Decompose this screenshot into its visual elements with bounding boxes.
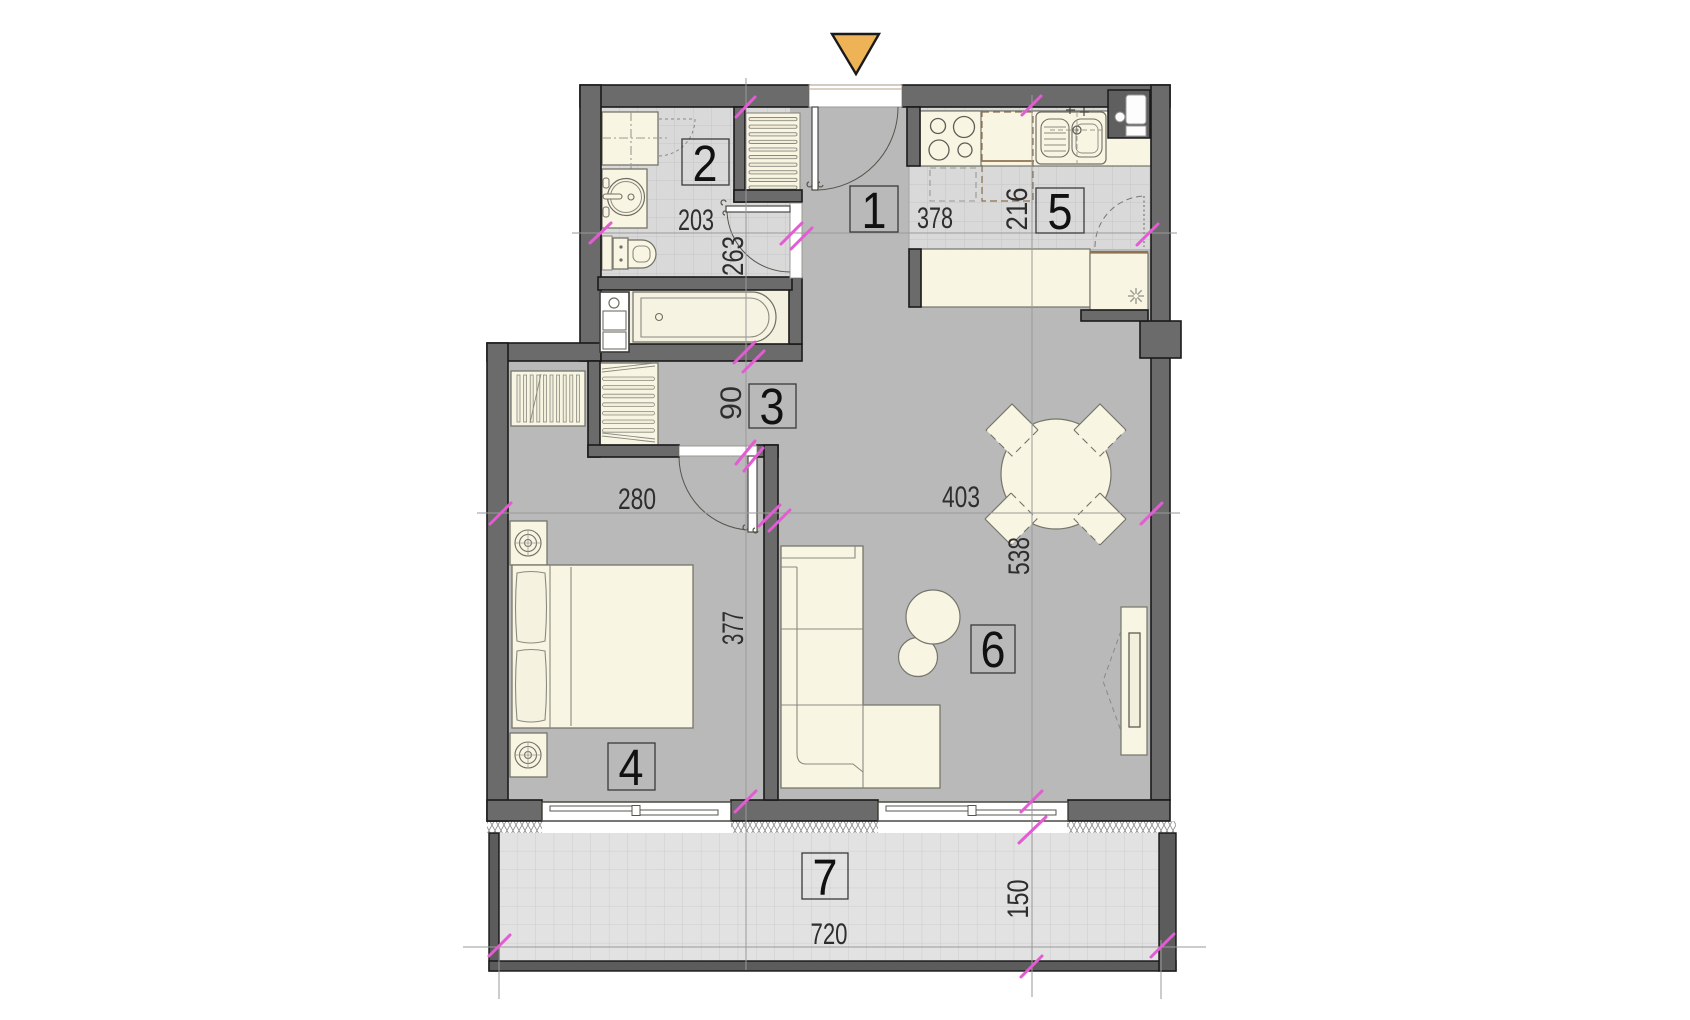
svg-text:150: 150: [1002, 880, 1035, 919]
svg-text:6: 6: [981, 621, 1006, 678]
svg-text:403: 403: [942, 481, 980, 514]
svg-text:1: 1: [862, 182, 887, 239]
svg-text:203: 203: [678, 204, 714, 237]
svg-text:2: 2: [693, 135, 718, 192]
svg-text:4: 4: [619, 739, 644, 796]
svg-text:90: 90: [715, 386, 748, 420]
svg-text:377: 377: [717, 611, 750, 645]
svg-text:280: 280: [618, 483, 656, 516]
svg-text:378: 378: [917, 202, 953, 235]
svg-text:3: 3: [760, 378, 785, 435]
svg-text:720: 720: [811, 918, 848, 951]
svg-text:216: 216: [1001, 188, 1034, 231]
svg-text:7: 7: [813, 849, 838, 906]
svg-text:263: 263: [717, 236, 750, 276]
svg-text:538: 538: [1003, 537, 1036, 575]
svg-text:5: 5: [1048, 183, 1073, 240]
